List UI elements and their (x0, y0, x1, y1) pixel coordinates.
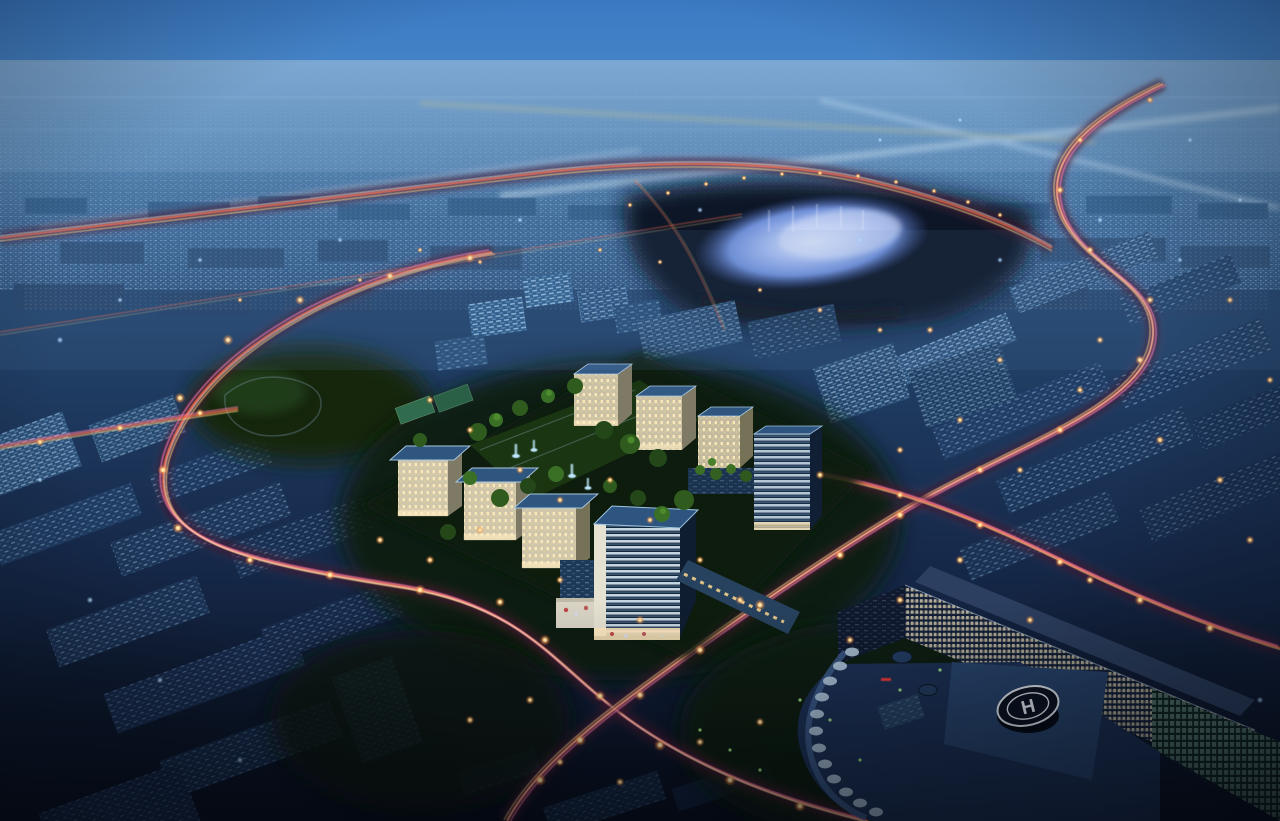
night-city-render: H (0, 0, 1280, 821)
vignette (0, 0, 1280, 821)
